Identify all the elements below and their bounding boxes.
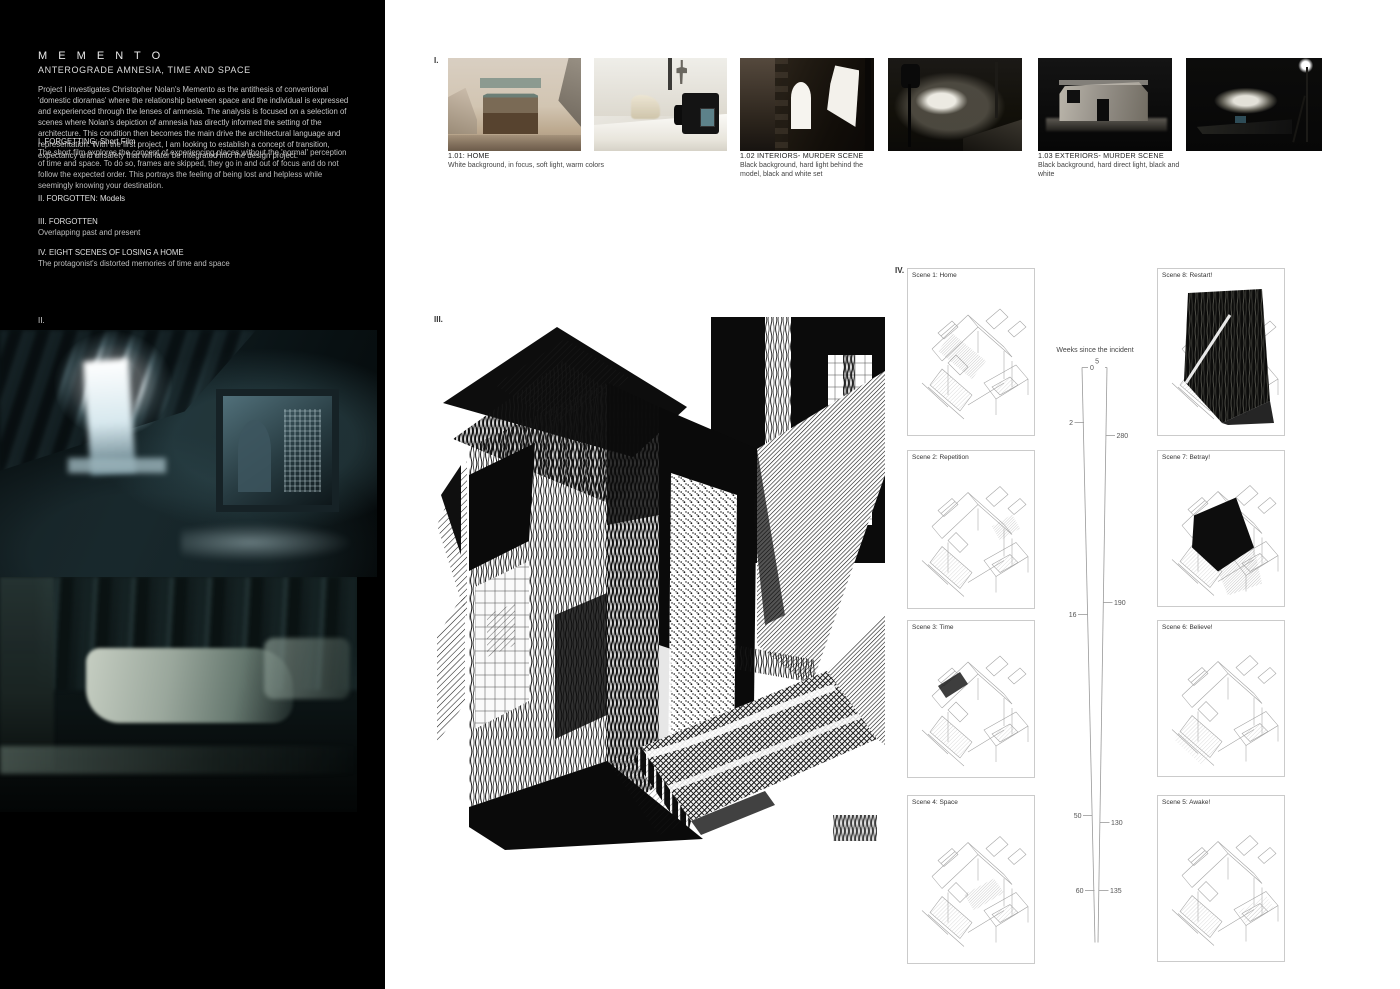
desk-shape xyxy=(963,119,1022,151)
arch-window-shape xyxy=(791,82,811,129)
photo-home-model xyxy=(448,58,581,151)
scene-box-3-time: Scene 3: Time xyxy=(907,620,1035,778)
section-body: Overlapping past and present xyxy=(38,227,352,238)
scene-title: Scene 3: Time xyxy=(912,624,954,631)
section-forgotten: III. FORGOTTEN Overlapping past and pres… xyxy=(38,216,352,238)
scene-title: Scene 5: Awake! xyxy=(1162,799,1210,806)
section-heading: I. FORGETTING: Short Film xyxy=(38,136,352,147)
caption-title: 1.03 EXTERIORS- MURDER SCENE xyxy=(1038,151,1188,161)
glowing-window-shape xyxy=(83,358,136,474)
tick-label: 2 xyxy=(1069,420,1073,427)
scene-title: Scene 7: Betray! xyxy=(1162,454,1210,461)
scene-box-5-awake: Scene 5: Awake! xyxy=(1157,795,1285,962)
section-body: The protagonist's distorted memories of … xyxy=(38,258,352,269)
caption-home: 1.01: HOME White background, in focus, s… xyxy=(448,151,633,170)
axonometric-drawing xyxy=(1158,633,1284,774)
caption-desc: Black background, hard light behind the … xyxy=(740,161,882,180)
camera-screen-shape xyxy=(700,108,715,127)
photo-dark-studio-model xyxy=(1186,58,1322,151)
dark-post-shape xyxy=(865,58,872,151)
tick-label: 50 xyxy=(1074,813,1082,820)
ground-shadow-shape xyxy=(448,135,581,151)
tick-label: 5 xyxy=(1095,359,1099,366)
section-heading: II. FORGOTTEN: Models xyxy=(38,193,352,204)
tick-label: 0 xyxy=(1090,365,1094,372)
window-opening-shape xyxy=(1067,90,1079,103)
caption-exteriors: 1.03 EXTERIORS- MURDER SCENE Black backg… xyxy=(1038,151,1188,180)
caption-title: 1.02 INTERIORS- MURDER SCENE xyxy=(740,151,882,161)
bed-secondary-shape xyxy=(264,638,350,699)
door-opening-shape xyxy=(1097,99,1109,121)
rock-right-shape xyxy=(558,58,581,127)
ink-drawing-interior xyxy=(435,315,885,850)
camera-back-shape xyxy=(1235,116,1246,123)
caption-interiors: 1.02 INTERIORS- MURDER SCENE Black backg… xyxy=(740,151,882,180)
rock-left-shape xyxy=(448,88,477,135)
scene-box-7-betray: Scene 7: Betray! xyxy=(1157,450,1285,607)
light-opening-shape xyxy=(827,65,859,126)
photo-studio-spotlight xyxy=(888,58,1022,151)
floor-shape xyxy=(0,746,357,774)
tick-label: 16 xyxy=(1069,612,1077,619)
axonometric-drawing xyxy=(908,463,1034,606)
scene-title: Scene 2: Repetition xyxy=(912,454,969,461)
section-heading: III. FORGOTTEN xyxy=(38,216,352,227)
caption-title: 1.01: HOME xyxy=(448,151,633,161)
window-sill-shape xyxy=(68,458,166,473)
roofline-shape xyxy=(1059,80,1147,85)
tick-label: 60 xyxy=(1076,888,1084,895)
section-heading: IV. EIGHT SCENES OF LOSING A HOME xyxy=(38,247,352,258)
house-roof-shape xyxy=(480,78,541,87)
tick-label: 190 xyxy=(1114,600,1126,607)
house-model-shape xyxy=(483,82,539,134)
timeline-left-line xyxy=(1082,368,1095,943)
timeline-diagram: 0 2 16 50 60 5 280 190 130 135 xyxy=(1040,340,1150,960)
arch-opening-shape xyxy=(238,420,271,492)
scene-label-iv: IV. xyxy=(895,266,904,275)
left-panel: M E M E N T O ANTEROGRADE AMNESIA, TIME … xyxy=(0,0,385,989)
project-title: M E M E N T O xyxy=(38,50,164,62)
model-photo-bed xyxy=(0,577,357,812)
tick-label: 280 xyxy=(1117,433,1129,440)
axonometric-drawing xyxy=(1158,808,1284,959)
section-body: The short film explores the concept of e… xyxy=(38,147,352,191)
tick-label: 135 xyxy=(1110,888,1122,895)
framed-window-shape xyxy=(216,389,339,512)
project-subtitle: ANTEROGRADE AMNESIA, TIME AND SPACE xyxy=(38,65,251,75)
photo-exterior-murder-scene xyxy=(1038,58,1172,151)
figure-label-ii: II. xyxy=(38,316,45,325)
rock-pillar-shape xyxy=(0,577,54,770)
lamp-stand-shape xyxy=(908,84,911,147)
bed-shape xyxy=(86,648,293,723)
scene-box-6-believe: Scene 6: Believe! xyxy=(1157,620,1285,777)
section-forgetting: I. FORGETTING: Short Film The short film… xyxy=(38,136,352,191)
mesh-grid-texture xyxy=(284,409,321,492)
tripod-leg-shape xyxy=(1292,96,1306,143)
caption-desc: White background, in focus, soft light, … xyxy=(448,161,633,170)
axonometric-drawing xyxy=(908,633,1034,775)
floor-glow-shape xyxy=(181,523,354,563)
section-forgotten-models: II. FORGOTTEN: Models xyxy=(38,193,352,204)
caption-desc: Black background, hard direct light, bla… xyxy=(1038,161,1188,180)
scene-title: Scene 6: Believe! xyxy=(1162,624,1213,631)
photo-interior-murder-scene xyxy=(740,58,874,151)
model-photo-interior-windows xyxy=(0,330,377,577)
strip-label-i: I. xyxy=(434,56,438,65)
axonometric-drawing xyxy=(908,281,1034,433)
tripod-leg-shape xyxy=(1306,67,1309,141)
axonometric-drawing xyxy=(908,808,1034,961)
scene-box-2-repetition: Scene 2: Repetition xyxy=(907,450,1035,609)
timeline-right-line xyxy=(1098,368,1107,943)
portfolio-board: M E M E N T O ANTEROGRADE AMNESIA, TIME … xyxy=(0,0,1400,989)
scene-title: Scene 4: Space xyxy=(912,799,958,806)
stand-pole-shape xyxy=(668,58,671,90)
scene-title: Scene 1: Home xyxy=(912,272,957,279)
scene-box-4-space: Scene 4: Space xyxy=(907,795,1035,964)
axonometric-drawing-with-montage xyxy=(1158,281,1284,433)
light-stand-shape xyxy=(995,62,998,118)
wall-streak-texture xyxy=(775,58,788,151)
dark-wall-shape xyxy=(740,58,775,151)
scene-title: Scene 8: Restart! xyxy=(1162,272,1212,279)
tick-label: 130 xyxy=(1111,820,1123,827)
photo-studio-camera xyxy=(594,58,727,151)
axonometric-drawing-with-shadow xyxy=(1158,463,1284,604)
section-eight-scenes: IV. EIGHT SCENES OF LOSING A HOME The pr… xyxy=(38,247,352,269)
